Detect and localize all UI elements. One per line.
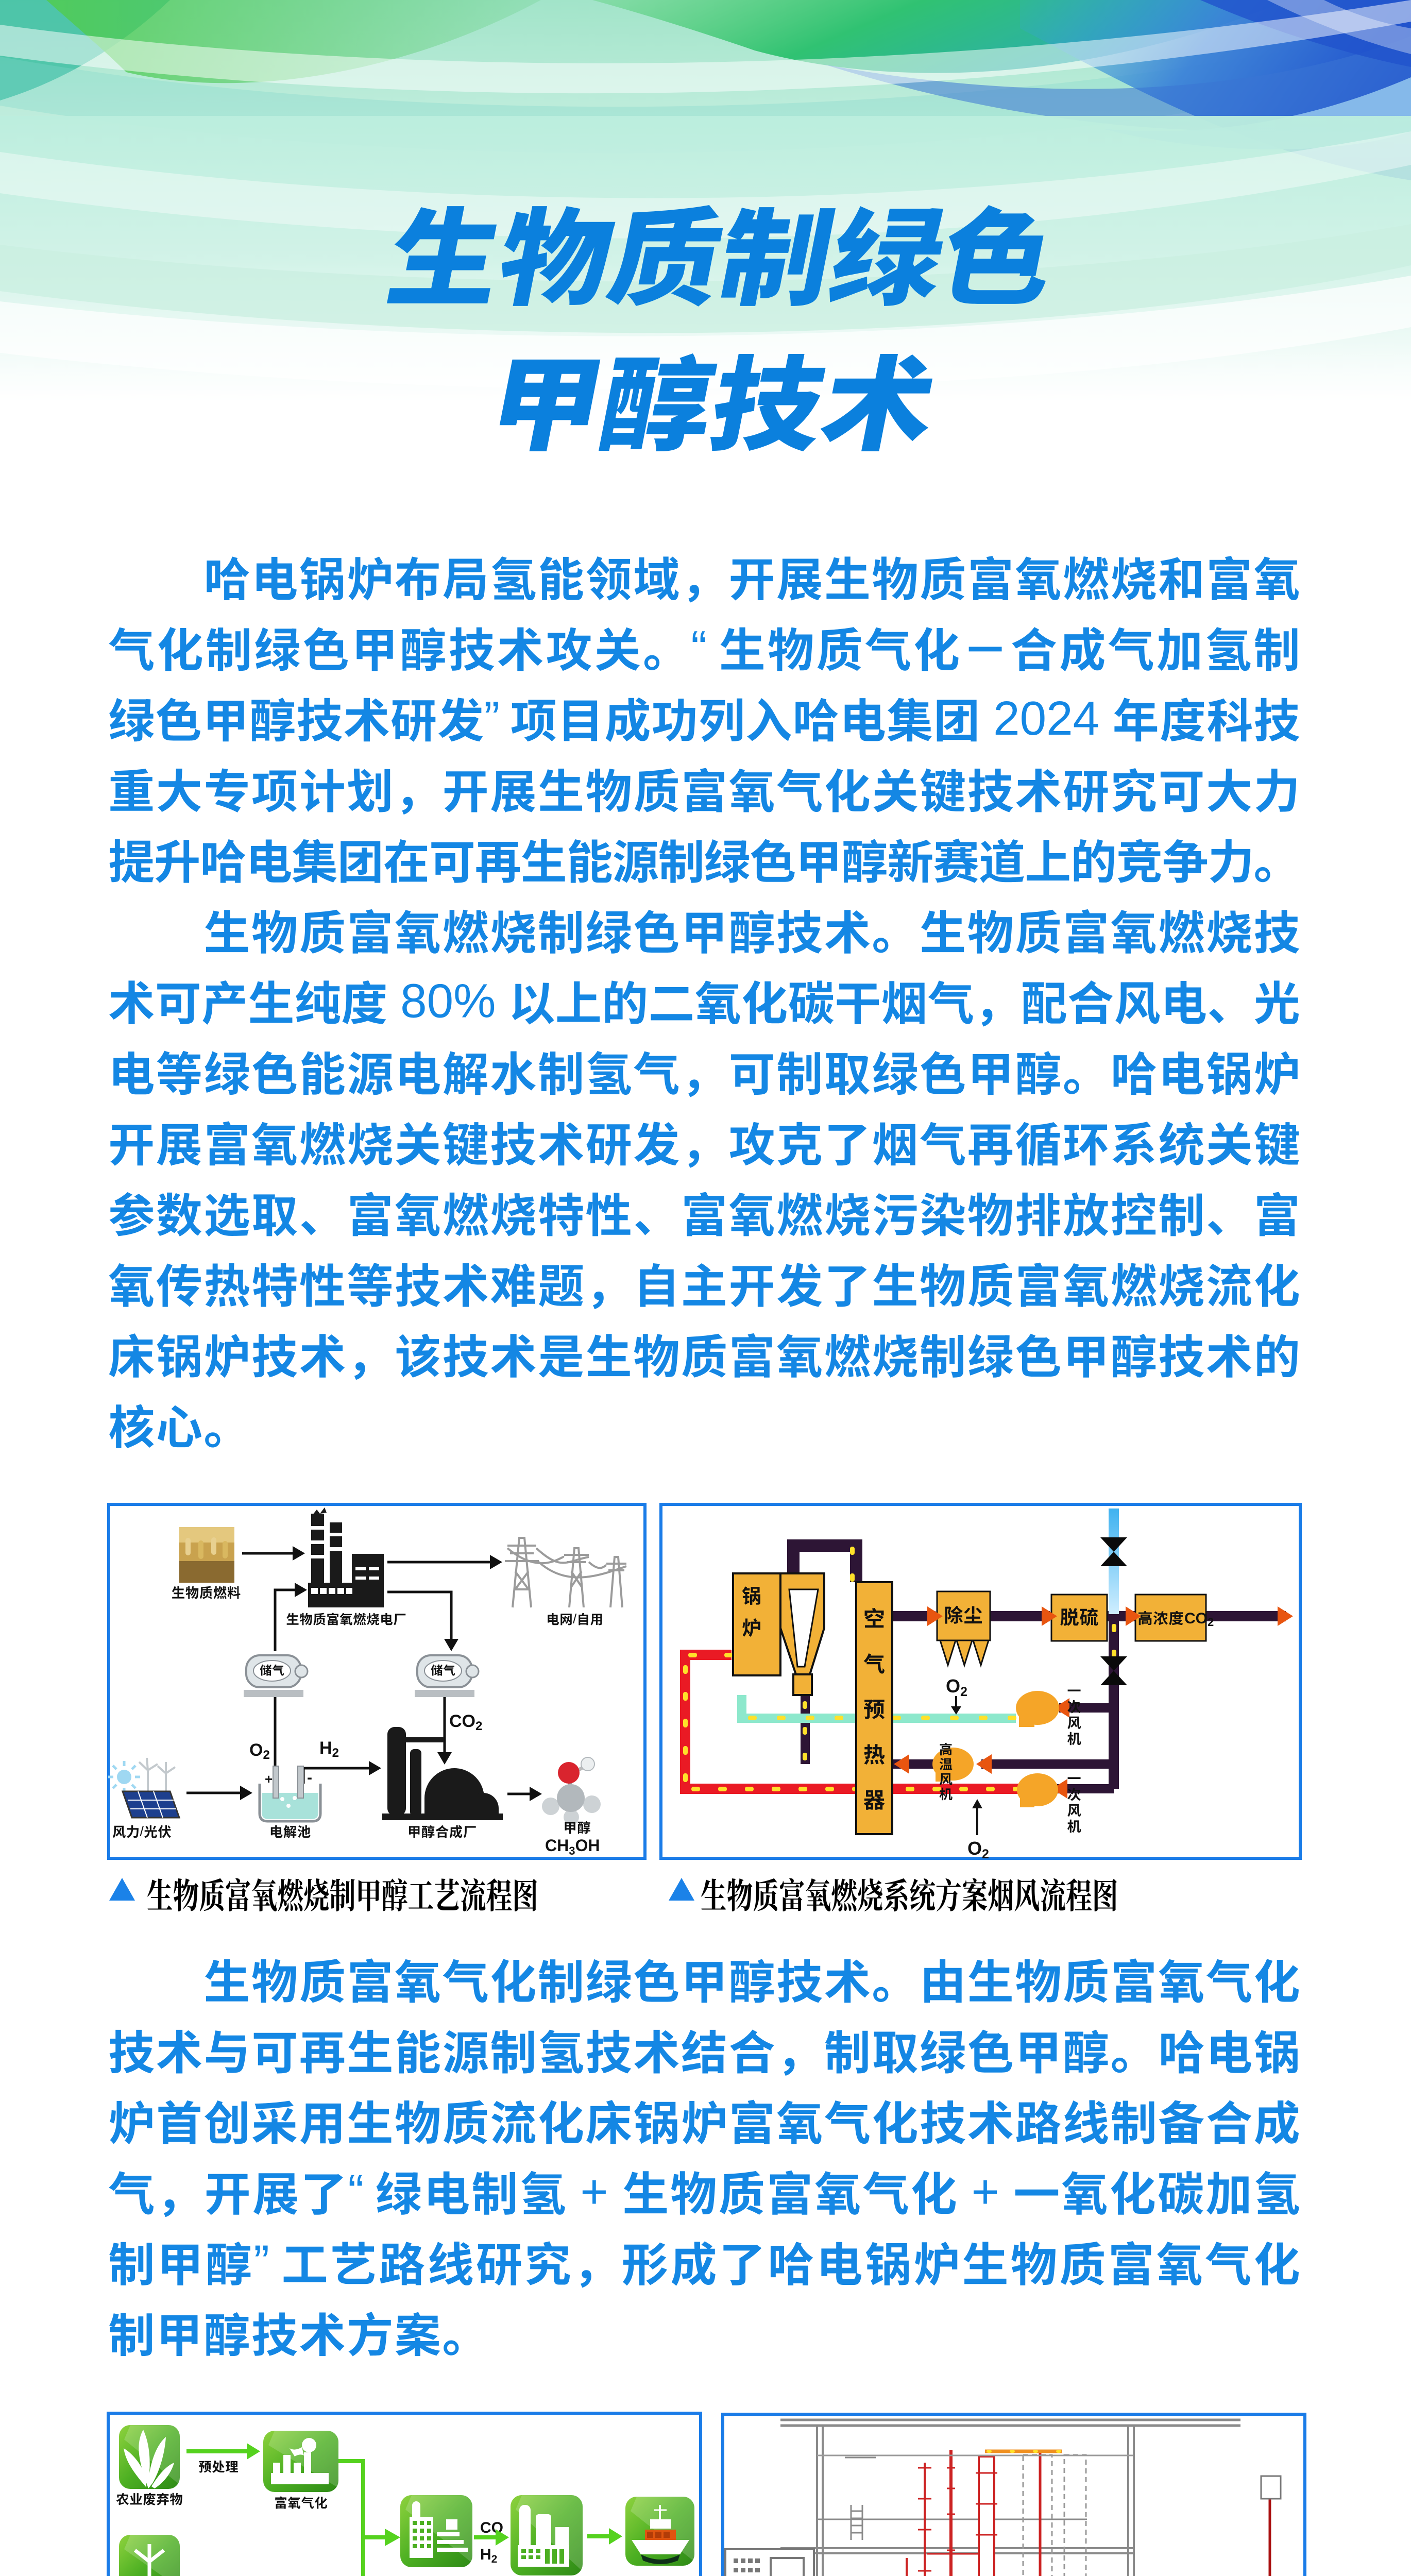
svg-text:-: -	[307, 1769, 312, 1786]
svg-text:“: “	[348, 2165, 364, 2218]
svg-text:/: /	[573, 1611, 577, 1626]
svg-text:80%: 80%	[387, 974, 509, 1028]
svg-text:/: /	[140, 1824, 144, 1839]
svg-text:“: “	[691, 621, 707, 674]
svg-text:”: ”	[484, 691, 500, 745]
svg-text:2024: 2024	[980, 691, 1112, 745]
svg-text:+: +	[567, 2165, 622, 2218]
svg-text:”: ”	[253, 2235, 269, 2289]
svg-text:+: +	[265, 1771, 273, 1787]
svg-text:+: +	[958, 2165, 1013, 2218]
